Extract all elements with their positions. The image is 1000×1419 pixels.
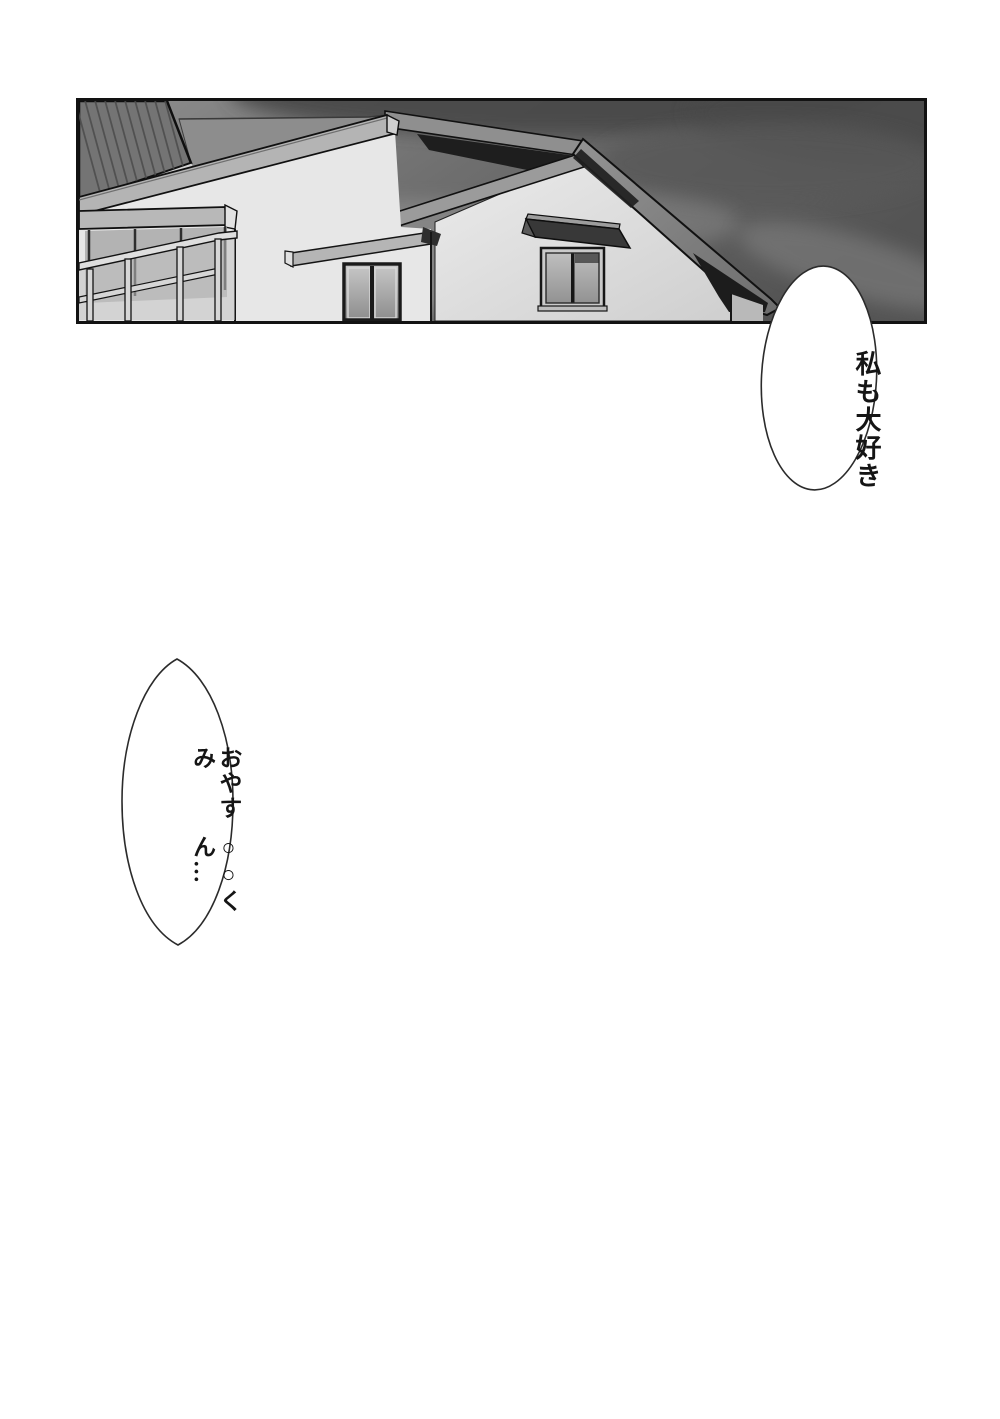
railing-post	[87, 269, 93, 321]
railing-post	[177, 247, 183, 321]
balloon-2-text: おやすみ ○○くん…	[113, 654, 241, 950]
sliding-window	[344, 264, 400, 320]
balloon-1-line: 大好き	[852, 406, 881, 490]
gable-window	[538, 248, 607, 311]
left-house	[79, 101, 441, 321]
railing-post	[125, 259, 131, 321]
speech-balloon-2: おやすみ ○○くん…	[113, 654, 241, 950]
railing-post	[215, 239, 221, 321]
window-sill	[538, 306, 607, 311]
manga-page: 私も 大好き おやすみ ○○くん…	[0, 0, 1000, 1419]
speech-balloon-1: 私も 大好き	[757, 263, 881, 493]
balloon-1-line: 私も	[852, 350, 881, 406]
balloon-2-line: ○○くん…	[188, 835, 241, 950]
balloon-1-text: 私も 大好き	[757, 263, 881, 493]
balloon-2-line: おやすみ	[188, 746, 241, 835]
